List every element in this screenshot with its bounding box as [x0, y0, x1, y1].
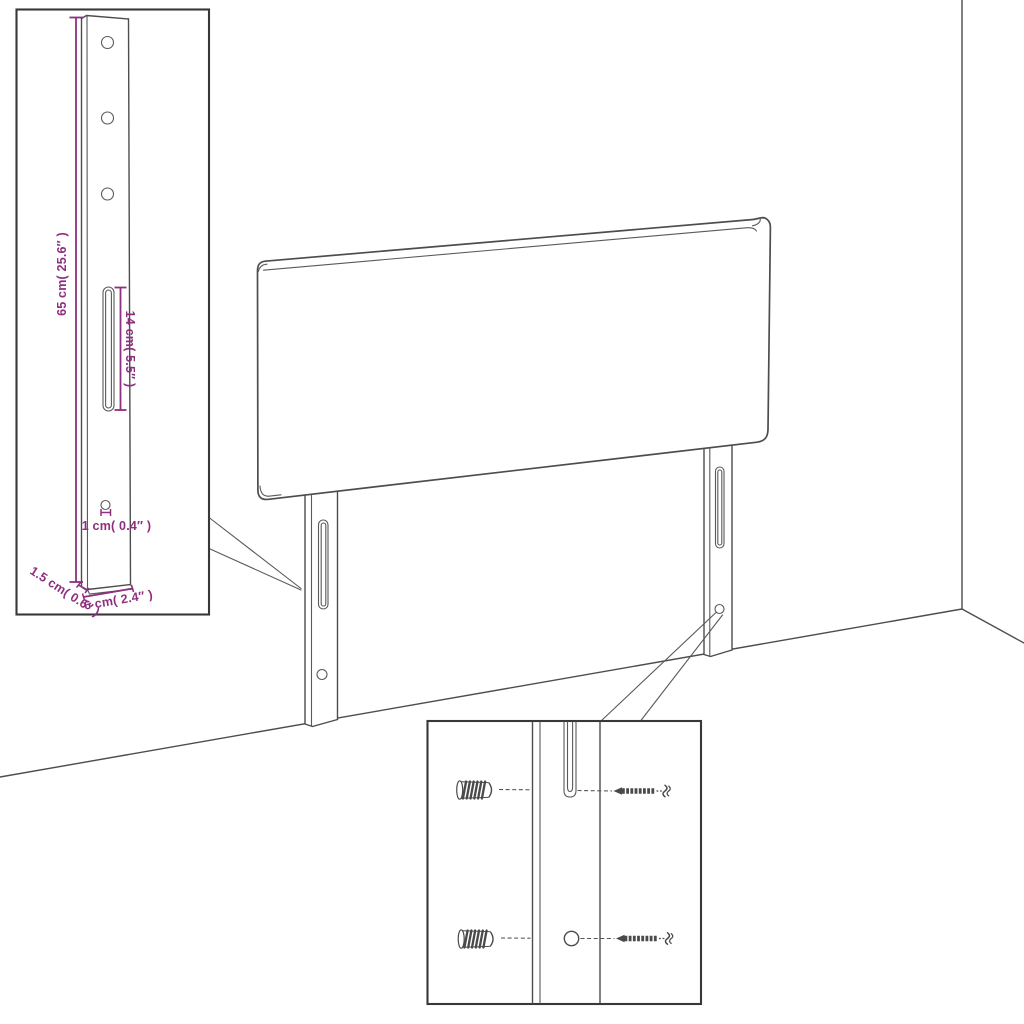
- headboard-left-leg: [305, 467, 338, 727]
- diagram-page: 65 cm( 25.6″ ) 14 cm( 5.5″ ) 1 cm( 0.4″ …: [0, 0, 1024, 1024]
- callout-leader-lines: [209, 518, 723, 722]
- leg-detail-inset: 65 cm( 25.6″ ) 14 cm( 5.5″ ) 1 cm( 0.4″ …: [17, 10, 210, 620]
- assembly-diagram: 65 cm( 25.6″ ) 14 cm( 5.5″ ) 1 cm( 0.4″ …: [0, 0, 1024, 1024]
- dimension-label-height: 65 cm( 25.6″ ): [55, 232, 69, 316]
- floor-line-right: [962, 609, 1024, 643]
- headboard-right-leg: [704, 441, 732, 657]
- dimension-label-hole: 1 cm( 0.4″ ): [82, 519, 152, 533]
- headboard-panel: [258, 218, 771, 500]
- hardware-detail-inset: [428, 721, 702, 1004]
- dimension-label-slot-length: 14 cm( 5.5″ ): [123, 311, 137, 388]
